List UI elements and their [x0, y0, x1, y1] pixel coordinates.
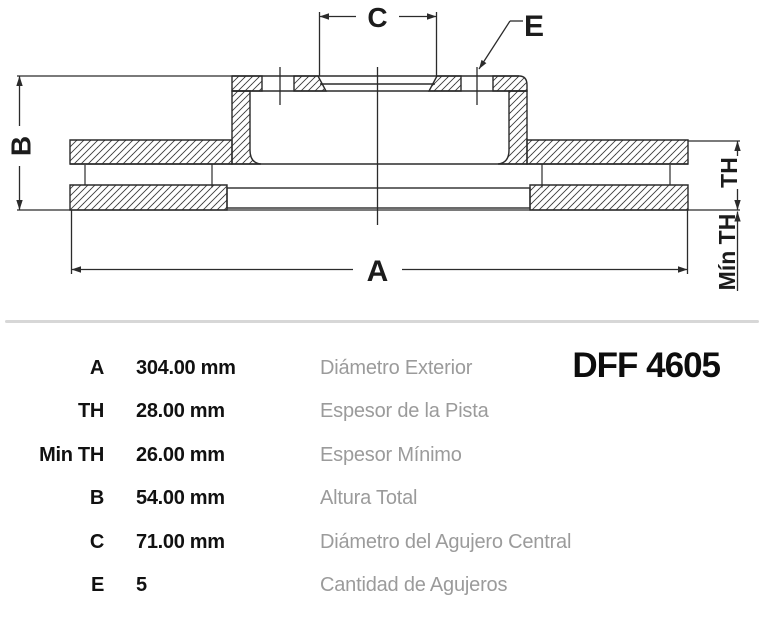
spec-value: 28.00 mm [136, 399, 316, 424]
hat-corner-left [232, 76, 262, 91]
disc-section-hatched-areas [70, 76, 688, 210]
upper-plate-left [70, 140, 232, 164]
spec-key: B [0, 486, 104, 511]
dim-label-C: C [367, 2, 387, 33]
dim-label-TH: TH [716, 157, 742, 188]
brake-disc-cross-section-drawing: C E B A TH Mín TH [0, 0, 764, 320]
spec-value: 26.00 mm [136, 443, 316, 468]
hat-corner-right [493, 76, 527, 91]
spec-key: A [0, 356, 104, 381]
spec-description: Altura Total [320, 486, 620, 511]
spec-description: Diámetro Exterior [320, 356, 620, 381]
brake-disc-spec-sheet: C E B A TH Mín TH DFF 4605 A 304.00 mm D… [0, 0, 764, 623]
spec-description: Espesor de la Pista [320, 399, 620, 424]
lower-plate-left [70, 185, 227, 210]
spec-row-Min-TH: Min TH 26.00 mm Espesor Mínimo [0, 443, 764, 468]
lower-plate-right [530, 185, 688, 210]
spec-key: C [0, 530, 104, 555]
spec-description: Cantidad de Agujeros [320, 573, 620, 598]
spec-key: Min TH [0, 443, 104, 468]
spec-description: Espesor Mínimo [320, 443, 620, 468]
dim-label-Min-TH: Mín TH [714, 214, 740, 291]
dim-label-A: A [367, 255, 389, 288]
dim-label-B: B [6, 136, 37, 156]
spec-value: 5 [136, 573, 316, 598]
spec-row-E: E 5 Cantidad de Agujeros [0, 573, 764, 598]
hat-wall-left [232, 91, 261, 164]
spec-value: 54.00 mm [136, 486, 316, 511]
upper-plate-right [527, 140, 688, 164]
spec-value: 304.00 mm [136, 356, 316, 381]
spec-table: DFF 4605 A 304.00 mm Diámetro Exterior T… [0, 322, 764, 623]
dim-label-E: E [524, 10, 544, 43]
spec-row-A: A 304.00 mm Diámetro Exterior [0, 356, 764, 381]
spec-row-C: C 71.00 mm Diámetro del Agujero Central [0, 530, 764, 555]
hat-wall-right [498, 91, 527, 164]
spec-key: TH [0, 399, 104, 424]
spec-key: E [0, 573, 104, 598]
spec-description: Diámetro del Agujero Central [320, 530, 620, 555]
spec-row-B: B 54.00 mm Altura Total [0, 486, 764, 511]
spec-row-TH: TH 28.00 mm Espesor de la Pista [0, 399, 764, 424]
spec-value: 71.00 mm [136, 530, 316, 555]
lower-vent-recess [227, 188, 530, 208]
